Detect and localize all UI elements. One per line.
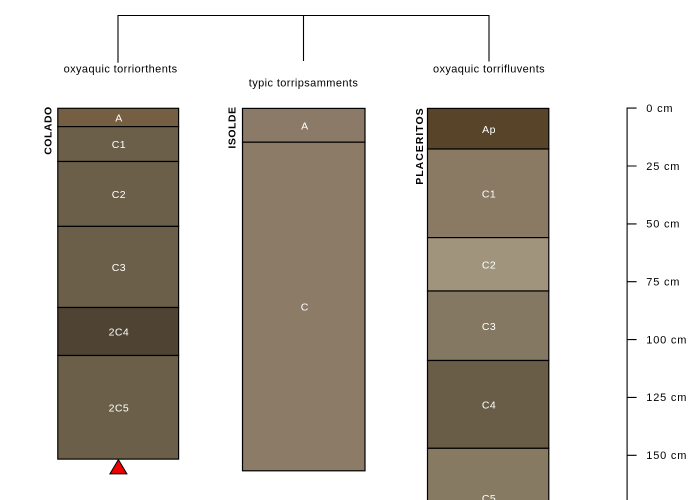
svg-text:Ap: Ap <box>482 124 496 136</box>
svg-text:C2: C2 <box>112 189 126 201</box>
svg-text:PLACERITOS: PLACERITOS <box>414 107 426 184</box>
svg-text:150 cm: 150 cm <box>646 450 687 462</box>
svg-text:C4: C4 <box>482 400 496 412</box>
svg-text:COLADO: COLADO <box>43 106 55 155</box>
svg-text:A: A <box>301 121 308 133</box>
svg-text:C2: C2 <box>482 260 496 272</box>
svg-text:C5: C5 <box>482 493 496 500</box>
svg-text:C3: C3 <box>112 262 126 274</box>
svg-text:50 cm: 50 cm <box>646 219 680 231</box>
svg-text:25 cm: 25 cm <box>646 161 680 173</box>
svg-text:C: C <box>301 302 309 314</box>
svg-text:75 cm: 75 cm <box>646 277 680 289</box>
svg-text:ISOLDE: ISOLDE <box>227 107 239 149</box>
svg-text:C1: C1 <box>482 189 496 201</box>
svg-text:C1: C1 <box>112 139 126 151</box>
svg-text:2C4: 2C4 <box>109 327 129 339</box>
svg-text:125 cm: 125 cm <box>646 392 687 404</box>
svg-text:oxyaquic torriorthents: oxyaquic torriorthents <box>64 64 178 76</box>
svg-text:100 cm: 100 cm <box>646 334 687 346</box>
svg-text:typic torripsamments: typic torripsamments <box>249 77 359 89</box>
svg-text:A: A <box>115 113 122 125</box>
svg-text:0 cm: 0 cm <box>646 103 673 115</box>
svg-text:oxyaquic torrifluvents: oxyaquic torrifluvents <box>433 64 545 76</box>
svg-text:2C5: 2C5 <box>109 403 129 415</box>
svg-text:C3: C3 <box>482 321 496 333</box>
